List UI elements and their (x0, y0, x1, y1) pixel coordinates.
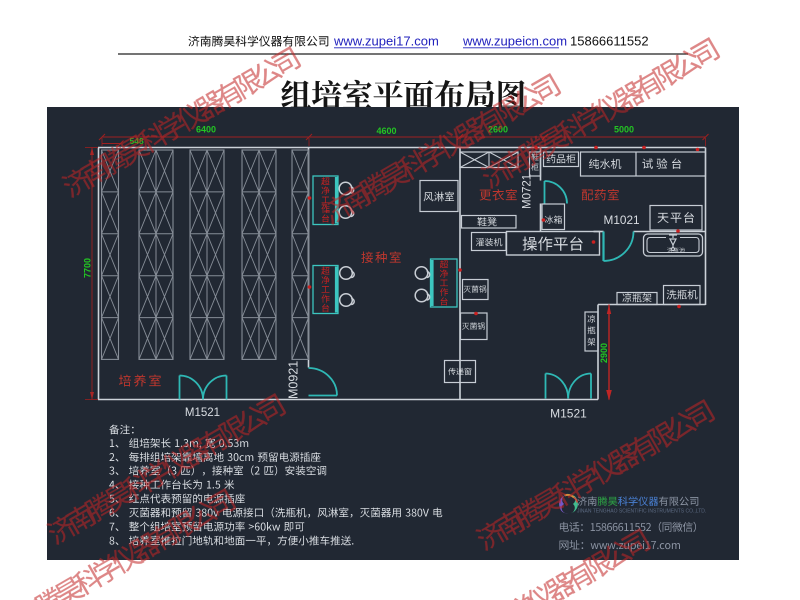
svg-text:4600: 4600 (376, 126, 396, 136)
svg-text:6400: 6400 (196, 125, 216, 135)
svg-text:JINAN TENGHAO SCIENTIFIC INSTR: JINAN TENGHAO SCIENTIFIC INSTRUMENTS CO.… (577, 509, 706, 515)
svg-text:2900: 2900 (599, 343, 609, 363)
svg-text:M1521: M1521 (185, 407, 220, 419)
svg-text:M0921: M0921 (287, 361, 301, 399)
svg-text:www.zupei17.com: www.zupei17.com (333, 34, 439, 49)
svg-text:www.zupeicn.com: www.zupeicn.com (462, 34, 567, 49)
svg-text:15866611552: 15866611552 (570, 34, 649, 49)
svg-text:5000: 5000 (614, 125, 634, 135)
svg-text:M1021: M1021 (604, 213, 640, 227)
svg-text:7700: 7700 (83, 258, 93, 278)
svg-text:M0721: M0721 (522, 174, 534, 209)
svg-text:M1521: M1521 (550, 407, 587, 421)
